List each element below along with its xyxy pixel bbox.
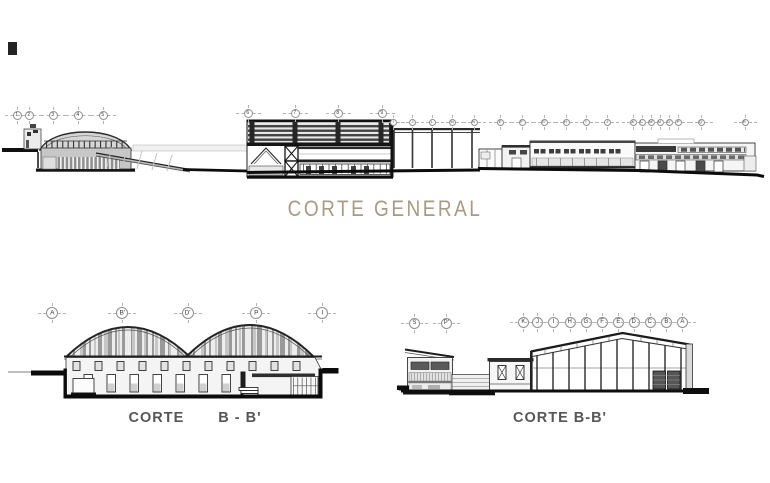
- grid-bubble-circle: A: [677, 317, 688, 328]
- grid-bubble-circle: S: [409, 318, 420, 329]
- grid-bubble-label: F': [520, 120, 523, 124]
- grid-bubble-label: R': [743, 120, 747, 124]
- grid-bubble-general-numeric-mid-7: 7: [283, 109, 308, 118]
- grid-bubble-label: 7: [294, 111, 297, 116]
- corte-b-right-drawing: [397, 333, 709, 395]
- corte-b-left-drawing: [8, 325, 339, 399]
- grid-bubble-label: B': [119, 310, 125, 317]
- grid-bubble-circle: E': [497, 119, 504, 126]
- grid-bubble-circle: B': [116, 307, 128, 319]
- grid-bubble-circle: N: [471, 119, 478, 126]
- grid-bubble-circle: 3: [49, 111, 58, 120]
- grid-bubble-general-letters-Q': Q': [690, 119, 713, 126]
- grid-bubble-label: 8: [337, 111, 340, 116]
- grid-bubble-label: A: [50, 310, 54, 317]
- grid-bubble-general-letters-R': R': [734, 119, 757, 126]
- label-corte-word: CORTE: [128, 410, 184, 426]
- grid-bubble-general-numeric-left-5: 5: [91, 111, 116, 120]
- grid-bubble-circle: P: [250, 307, 262, 319]
- label-corte-section: B - B': [218, 410, 261, 426]
- grid-bubble-circle: I': [583, 119, 590, 126]
- grid-bubble-label: J: [411, 120, 413, 124]
- grid-bubble-circle: 9: [378, 109, 387, 118]
- grid-bubble-label: I': [585, 120, 587, 124]
- grid-bubble-general-numeric-mid-8: 8: [326, 109, 351, 118]
- grid-bubble-label: D': [185, 310, 191, 317]
- grid-bubble-corte-left-A: A: [38, 307, 66, 319]
- grid-bubble-general-letters-N: N: [463, 119, 486, 126]
- grid-bubble-corte-left-B': B': [108, 307, 136, 319]
- grid-bubble-circle: R': [742, 119, 749, 126]
- grid-bubble-circle: 6: [244, 109, 253, 118]
- grid-bubble-label: L: [431, 120, 433, 124]
- label-corte-b-left: CORTE B - B': [55, 410, 335, 426]
- grid-bubble-label: P': [443, 320, 448, 326]
- grid-bubble-circle: 7: [291, 109, 300, 118]
- grid-bubble-corte-right-row-A: A: [669, 317, 696, 328]
- grid-bubble-label: B: [664, 319, 668, 325]
- grid-bubble-label: I: [392, 120, 393, 124]
- label-corte-b-right: CORTE B-B': [440, 410, 680, 426]
- grid-bubble-label: F: [600, 319, 604, 325]
- title-corte-general: CORTE GENERAL: [0, 197, 770, 223]
- grid-bubble-general-numeric-mid-6: 6: [236, 109, 261, 118]
- grid-bubble-general-numeric-mid-9: 9: [370, 109, 395, 118]
- grid-bubble-general-numeric-left-3: 3: [41, 111, 66, 120]
- grid-bubble-label: 3: [52, 113, 55, 118]
- grid-bubble-general-numeric-left-2: 2: [17, 111, 42, 120]
- grid-bubble-label: I: [321, 310, 323, 317]
- grid-bubble-circle: 8: [334, 109, 343, 118]
- grid-bubble-circle: A: [46, 307, 58, 319]
- corte-general-drawing: [2, 120, 764, 179]
- grid-bubble-circle: J': [604, 119, 611, 126]
- grid-bubble-circle: I: [390, 119, 397, 126]
- grid-bubble-label: P': [676, 120, 679, 124]
- grid-bubble-corte-right-pair-S: S: [401, 318, 428, 329]
- grid-bubble-label: 6: [247, 111, 250, 116]
- grid-bubble-circle: D': [182, 307, 194, 319]
- grid-bubble-general-letters-M: M: [441, 119, 464, 126]
- grid-bubble-label: 9: [381, 111, 384, 116]
- grid-bubble-circle: M: [449, 119, 456, 126]
- grid-bubble-general-letters-I': I': [575, 119, 598, 126]
- grid-bubble-label: D: [632, 319, 636, 325]
- grid-bubble-label: M: [450, 120, 453, 124]
- grid-bubble-label: P: [254, 310, 258, 317]
- grid-bubble-general-letters-F': F': [511, 119, 534, 126]
- grid-bubble-circle: 5: [99, 111, 108, 120]
- label-corte-right-text: CORTE B-B': [513, 410, 607, 426]
- grid-bubble-circle: Q': [698, 119, 705, 126]
- grid-bubble-circle: I: [316, 307, 328, 319]
- grid-bubble-circle: 2: [25, 111, 34, 120]
- drawing-sheet: CORTE GENERAL CORTE B - B' CORTE B-B' 12…: [0, 0, 770, 483]
- grid-bubble-label: E': [498, 120, 501, 124]
- grid-bubble-general-letters-J': J': [596, 119, 619, 126]
- grid-bubble-corte-left-D': D': [174, 307, 202, 319]
- grid-bubble-label: I: [552, 319, 554, 325]
- grid-bubble-label: H: [568, 319, 572, 325]
- grid-bubble-circle: F': [519, 119, 526, 126]
- grid-bubble-general-letters-G': G': [533, 119, 556, 126]
- grid-bubble-label: C: [648, 319, 652, 325]
- grid-bubble-label: J': [606, 120, 609, 124]
- grid-bubble-general-letters-P': P': [667, 119, 690, 126]
- grid-bubble-label: J: [536, 319, 539, 325]
- grid-bubble-circle: P': [441, 318, 452, 329]
- grid-bubble-corte-left-I: I: [308, 307, 336, 319]
- grid-bubble-label: A: [680, 319, 684, 325]
- grid-bubble-label: Q': [699, 120, 703, 124]
- grid-bubble-circle: H': [563, 119, 570, 126]
- grid-bubble-label: N: [473, 120, 476, 124]
- grid-bubble-label: H': [564, 120, 568, 124]
- grid-bubble-corte-right-pair-P': P': [433, 318, 460, 329]
- grid-bubble-corte-left-P: P: [242, 307, 270, 319]
- grid-bubble-label: 2: [28, 113, 31, 118]
- grid-bubble-label: G': [542, 120, 546, 124]
- grid-bubble-circle: P': [675, 119, 682, 126]
- grid-bubble-circle: G': [541, 119, 548, 126]
- grid-bubble-label: S: [412, 320, 416, 326]
- grid-bubble-circle: L: [429, 119, 436, 126]
- grid-bubble-label: 4: [77, 113, 80, 118]
- grid-bubble-general-numeric-left-4: 4: [66, 111, 91, 120]
- grid-bubble-circle: 4: [74, 111, 83, 120]
- grid-bubble-general-letters-E': E': [489, 119, 512, 126]
- grid-bubble-label: E: [616, 319, 620, 325]
- grid-bubble-label: 5: [102, 113, 105, 118]
- grid-bubble-circle: J: [409, 119, 416, 126]
